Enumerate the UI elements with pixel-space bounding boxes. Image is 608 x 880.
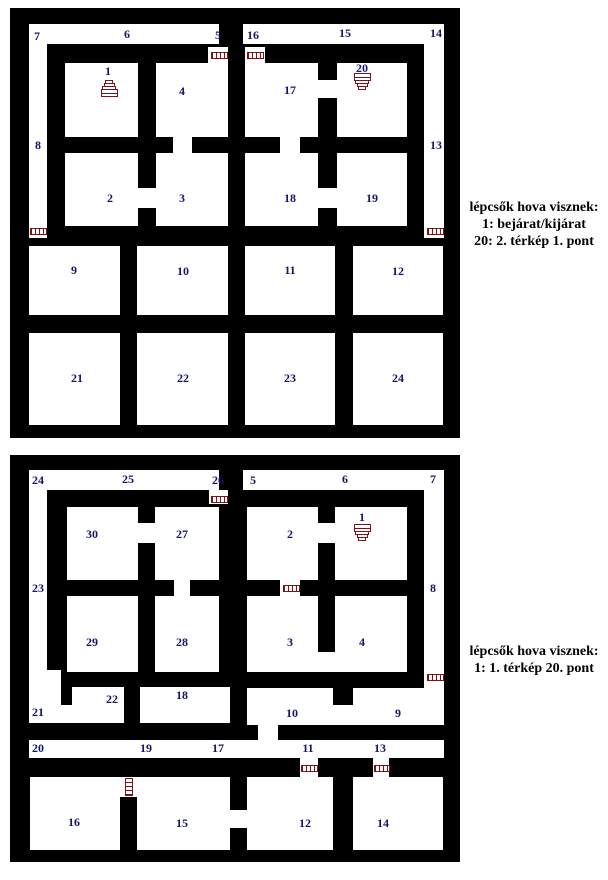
point-label: 9 xyxy=(71,264,77,276)
point-label: 8 xyxy=(430,582,436,594)
floor-area xyxy=(424,24,444,238)
point-label: 24 xyxy=(392,372,404,384)
point-label: 5 xyxy=(215,29,221,41)
stairs-down-icon xyxy=(353,74,371,91)
point-label: 10 xyxy=(177,265,189,277)
point-label: 10 xyxy=(286,707,298,719)
floor-area xyxy=(138,188,156,208)
floor-area xyxy=(67,507,138,580)
floor-area xyxy=(247,507,318,580)
floor-area xyxy=(65,153,138,226)
floor-area xyxy=(258,725,278,740)
point-label: 18 xyxy=(284,192,296,204)
ladder-icon xyxy=(374,765,390,772)
stairs-step xyxy=(101,89,118,97)
map-2: 2425265672383027212928342122181092019171… xyxy=(10,455,460,862)
point-label: 22 xyxy=(106,693,118,705)
point-label: 1 xyxy=(359,511,365,523)
point-label: 14 xyxy=(430,27,442,39)
point-label: 11 xyxy=(302,742,313,754)
floor-area xyxy=(155,596,219,672)
floor-area xyxy=(67,596,138,672)
ladder-icon xyxy=(30,228,47,235)
point-label: 2 xyxy=(107,192,113,204)
point-label: 8 xyxy=(35,139,41,151)
point-label: 6 xyxy=(342,473,348,485)
point-label: 17 xyxy=(284,84,296,96)
legend-title: lépcsők hova visznek: xyxy=(461,643,607,660)
point-label: 23 xyxy=(284,372,296,384)
ladder-icon xyxy=(427,228,444,235)
floor-area xyxy=(424,470,444,725)
point-label: 9 xyxy=(395,707,401,719)
floor-area xyxy=(156,153,228,226)
point-label: 3 xyxy=(287,636,293,648)
point-label: 15 xyxy=(339,27,351,39)
ladder-icon xyxy=(301,765,318,772)
floor-area xyxy=(156,63,228,137)
legend-map-1: lépcsők hova visznek: 1: bejárat/kijárat… xyxy=(461,199,607,250)
point-label: 4 xyxy=(359,636,365,648)
point-label: 3 xyxy=(179,192,185,204)
point-label: 14 xyxy=(377,817,389,829)
floor-area xyxy=(337,153,407,226)
point-label: 2 xyxy=(287,528,293,540)
point-label: 7 xyxy=(430,473,436,485)
point-label: 20 xyxy=(32,742,44,754)
floor-area xyxy=(318,80,337,98)
point-label: 25 xyxy=(122,473,134,485)
stairs-down-icon xyxy=(353,525,371,542)
floor-area xyxy=(65,63,138,137)
stairs-step xyxy=(358,537,366,541)
floor-area xyxy=(29,246,120,315)
point-label: 24 xyxy=(32,474,44,486)
point-label: 30 xyxy=(86,528,98,540)
floor-area xyxy=(137,777,230,850)
floor-area xyxy=(247,777,333,850)
ladder-icon xyxy=(211,496,228,503)
point-label: 1 xyxy=(105,65,111,77)
floor-area xyxy=(318,523,335,543)
legend-title: lépcsők hova visznek: xyxy=(461,199,607,216)
point-label: 29 xyxy=(86,636,98,648)
point-label: 12 xyxy=(392,265,404,277)
point-label: 22 xyxy=(177,372,189,384)
point-label: 6 xyxy=(124,28,130,40)
point-label: 21 xyxy=(32,706,44,718)
floor-area xyxy=(228,810,247,828)
floor-area xyxy=(138,523,155,543)
floor-area xyxy=(245,63,318,137)
floor-area xyxy=(29,24,47,238)
point-label: 18 xyxy=(176,689,188,701)
legend-line: 1: bejárat/kijárat xyxy=(461,216,607,233)
floor-area xyxy=(137,246,228,315)
ladder-icon xyxy=(125,778,133,796)
floor-area xyxy=(353,777,443,850)
stairs-up-icon xyxy=(100,81,118,98)
point-label: 16 xyxy=(247,29,259,41)
point-label: 19 xyxy=(366,192,378,204)
floor-area xyxy=(280,137,300,153)
point-label: 19 xyxy=(140,742,152,754)
point-label: 27 xyxy=(176,528,188,540)
ladder-icon xyxy=(211,52,228,59)
legend-map-2: lépcsők hova visznek: 1: 1. térkép 20. p… xyxy=(461,643,607,677)
floor-area xyxy=(155,507,219,580)
floor-area xyxy=(337,63,407,137)
point-label: 15 xyxy=(176,817,188,829)
point-label: 13 xyxy=(430,139,442,151)
point-label: 13 xyxy=(374,742,386,754)
point-label: 11 xyxy=(284,264,295,276)
ladder-icon xyxy=(427,674,444,681)
wall-segment xyxy=(333,688,353,705)
point-label: 12 xyxy=(299,817,311,829)
point-label: 5 xyxy=(250,474,256,486)
wall-segment xyxy=(318,596,335,652)
legend-line: 20: 2. térkép 1. pont xyxy=(461,233,607,250)
point-label: 21 xyxy=(71,372,83,384)
point-label: 16 xyxy=(68,816,80,828)
point-label: 23 xyxy=(32,582,44,594)
map-1: 765161514813141720231819910111221222324 xyxy=(10,8,460,438)
floor-area xyxy=(29,470,47,723)
floor-area xyxy=(173,137,192,153)
point-label: 17 xyxy=(212,742,224,754)
legend-line: 1: 1. térkép 20. pont xyxy=(461,660,607,677)
floor-area xyxy=(30,777,120,850)
floor-area xyxy=(353,246,443,315)
point-label: 4 xyxy=(179,85,185,97)
point-label: 7 xyxy=(34,30,40,42)
stairs-step xyxy=(358,86,366,90)
floor-area xyxy=(245,153,318,226)
floor-area xyxy=(318,188,337,208)
ladder-icon xyxy=(247,52,264,59)
ladder-icon xyxy=(283,585,300,592)
point-label: 26 xyxy=(212,474,224,486)
dungeon-maps-page: { "colors":{"wall":"#000000","floor":"#f… xyxy=(0,0,608,880)
point-label: 28 xyxy=(176,636,188,648)
floor-area xyxy=(335,507,407,580)
point-label: 20 xyxy=(356,62,368,74)
floor-area xyxy=(174,578,190,596)
floor-area xyxy=(245,246,335,315)
